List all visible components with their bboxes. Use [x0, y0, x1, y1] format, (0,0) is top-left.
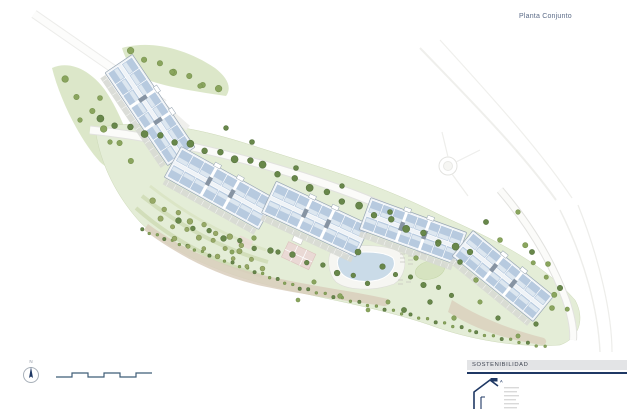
tree — [276, 277, 279, 280]
tree — [531, 261, 535, 265]
tree — [239, 243, 244, 248]
tree — [187, 140, 194, 147]
tree — [231, 261, 234, 264]
sustainability-legend: SOSTENIBILIDAD — [467, 360, 627, 374]
tree — [334, 270, 340, 276]
tree — [458, 260, 463, 265]
tree — [186, 244, 190, 248]
tree — [268, 276, 271, 279]
tree — [170, 225, 174, 229]
tree — [268, 248, 274, 254]
tree — [421, 230, 427, 236]
tree — [428, 300, 433, 305]
tree — [534, 322, 539, 327]
tree — [421, 282, 427, 288]
tree — [202, 247, 206, 251]
tree — [408, 275, 413, 280]
tree — [158, 132, 164, 138]
tree — [97, 115, 104, 122]
tree — [141, 57, 146, 62]
tree — [261, 272, 264, 275]
tree — [187, 73, 192, 78]
tree — [321, 263, 326, 268]
north-arrow: N — [24, 359, 39, 383]
tree — [351, 273, 356, 278]
tree — [128, 124, 134, 130]
tree — [452, 316, 457, 321]
scale-bar — [56, 373, 152, 377]
tree — [417, 317, 420, 320]
tree — [544, 275, 548, 279]
tree — [172, 140, 178, 146]
tree — [371, 212, 377, 218]
tree — [518, 341, 521, 344]
tree — [358, 300, 361, 303]
tree — [306, 184, 313, 191]
tree — [500, 337, 503, 340]
tree — [191, 226, 196, 231]
sustainability-label: SOSTENIBILIDAD — [472, 362, 528, 368]
tree — [223, 246, 227, 250]
house-icon: A — [471, 378, 531, 409]
tree — [227, 234, 233, 240]
tree — [304, 260, 309, 265]
tree — [248, 158, 254, 164]
tree — [451, 325, 454, 328]
tree — [529, 249, 534, 254]
tree — [231, 257, 235, 261]
tree — [496, 316, 501, 321]
tree — [172, 236, 177, 241]
tree — [260, 266, 265, 271]
page-title: Planta Conjunto — [519, 13, 572, 20]
tree — [356, 202, 363, 209]
tree — [283, 282, 286, 285]
tree — [409, 313, 412, 316]
tree — [291, 283, 294, 286]
tree — [158, 216, 163, 221]
tree — [475, 331, 478, 334]
tree — [483, 334, 486, 337]
tree — [365, 281, 370, 286]
tree — [393, 272, 398, 277]
tree — [516, 334, 520, 338]
tree — [436, 285, 441, 290]
tree — [483, 219, 488, 224]
tree — [388, 210, 393, 215]
tree — [162, 207, 167, 212]
tree — [157, 61, 162, 66]
tree — [202, 148, 208, 154]
tree — [230, 250, 234, 254]
tree — [388, 216, 394, 222]
svg-text:A: A — [500, 379, 503, 384]
tree — [128, 158, 133, 163]
tree — [176, 218, 182, 224]
tree — [550, 306, 555, 311]
tree — [215, 85, 222, 92]
tree — [375, 305, 378, 308]
tree — [237, 249, 242, 254]
tree — [298, 287, 301, 290]
tree — [187, 218, 193, 224]
tree — [62, 76, 69, 83]
tree — [276, 250, 281, 255]
tree — [221, 236, 227, 242]
tree — [392, 309, 395, 312]
tree — [231, 156, 238, 163]
sustainability-bar: SOSTENIBILIDAD — [467, 360, 627, 370]
tree — [509, 338, 512, 341]
tree — [163, 237, 166, 240]
tree — [557, 285, 562, 290]
tree — [478, 300, 482, 304]
tree — [523, 243, 528, 248]
tree — [474, 278, 479, 283]
tree — [315, 292, 318, 295]
north-label: N — [29, 359, 32, 364]
tree — [546, 262, 551, 267]
tree — [176, 210, 181, 215]
tree — [498, 238, 503, 243]
tree — [252, 236, 257, 241]
tree — [141, 228, 144, 231]
tree — [141, 131, 148, 138]
tree — [290, 252, 296, 258]
tree — [400, 313, 403, 316]
tree — [202, 222, 207, 227]
tree — [467, 249, 473, 255]
tree — [403, 225, 410, 232]
tree — [250, 140, 255, 145]
tree — [252, 246, 257, 251]
tree — [324, 292, 327, 295]
tree — [178, 243, 181, 246]
sustainability-underline — [467, 372, 627, 374]
tree — [516, 210, 521, 215]
tree — [386, 300, 390, 304]
tree — [312, 280, 316, 284]
tree — [380, 264, 386, 270]
tree — [211, 238, 215, 242]
tree — [340, 184, 345, 189]
tree — [108, 140, 113, 145]
tree — [339, 199, 345, 205]
tree — [434, 321, 437, 324]
tree — [213, 231, 218, 236]
tree — [526, 341, 529, 344]
house-icon-caption-lines — [504, 387, 519, 408]
tree — [307, 288, 310, 291]
tree — [460, 325, 463, 328]
tree — [366, 308, 370, 312]
tree — [238, 265, 241, 268]
tree — [185, 227, 189, 231]
tree — [443, 322, 446, 325]
tree — [156, 233, 159, 236]
tree — [74, 94, 79, 99]
tree — [218, 149, 224, 155]
tree — [127, 47, 134, 54]
tree — [196, 235, 201, 240]
tree — [215, 254, 220, 259]
tree — [150, 198, 156, 204]
tree — [296, 298, 300, 302]
tree — [426, 317, 429, 320]
tree — [100, 126, 107, 133]
tree — [552, 292, 557, 297]
tree — [223, 260, 226, 263]
tree — [259, 161, 266, 168]
tree — [449, 293, 454, 298]
tree — [170, 70, 175, 75]
tree — [468, 329, 471, 332]
tree — [366, 304, 369, 307]
tree — [401, 307, 406, 312]
tree — [253, 271, 256, 274]
tree — [414, 256, 419, 261]
tree — [112, 123, 118, 129]
site-plan-drawing: N — [0, 0, 630, 409]
site-plan-sheet: N Planta Conjunto SOSTENIBILIDAD A — [0, 0, 630, 409]
tree — [90, 108, 95, 113]
tree — [324, 189, 330, 195]
tree — [565, 307, 569, 311]
tree — [224, 126, 229, 131]
tree — [98, 96, 103, 101]
tree — [245, 264, 249, 268]
tree — [492, 334, 495, 337]
tree — [355, 249, 361, 255]
tree — [193, 249, 196, 252]
tree — [332, 295, 335, 298]
tree — [237, 238, 242, 243]
tree — [249, 257, 253, 261]
tree — [535, 345, 538, 348]
tree — [294, 166, 299, 171]
tree — [275, 171, 281, 177]
tree — [452, 243, 459, 250]
tree — [208, 254, 211, 257]
tree — [148, 232, 151, 235]
tree — [349, 300, 352, 303]
tree — [338, 294, 343, 299]
tree — [383, 308, 386, 311]
tree — [78, 118, 83, 123]
tree — [117, 140, 122, 145]
tree — [292, 175, 298, 181]
tree — [544, 345, 547, 348]
tree — [207, 228, 212, 233]
tree — [198, 84, 203, 89]
tree — [436, 242, 441, 247]
